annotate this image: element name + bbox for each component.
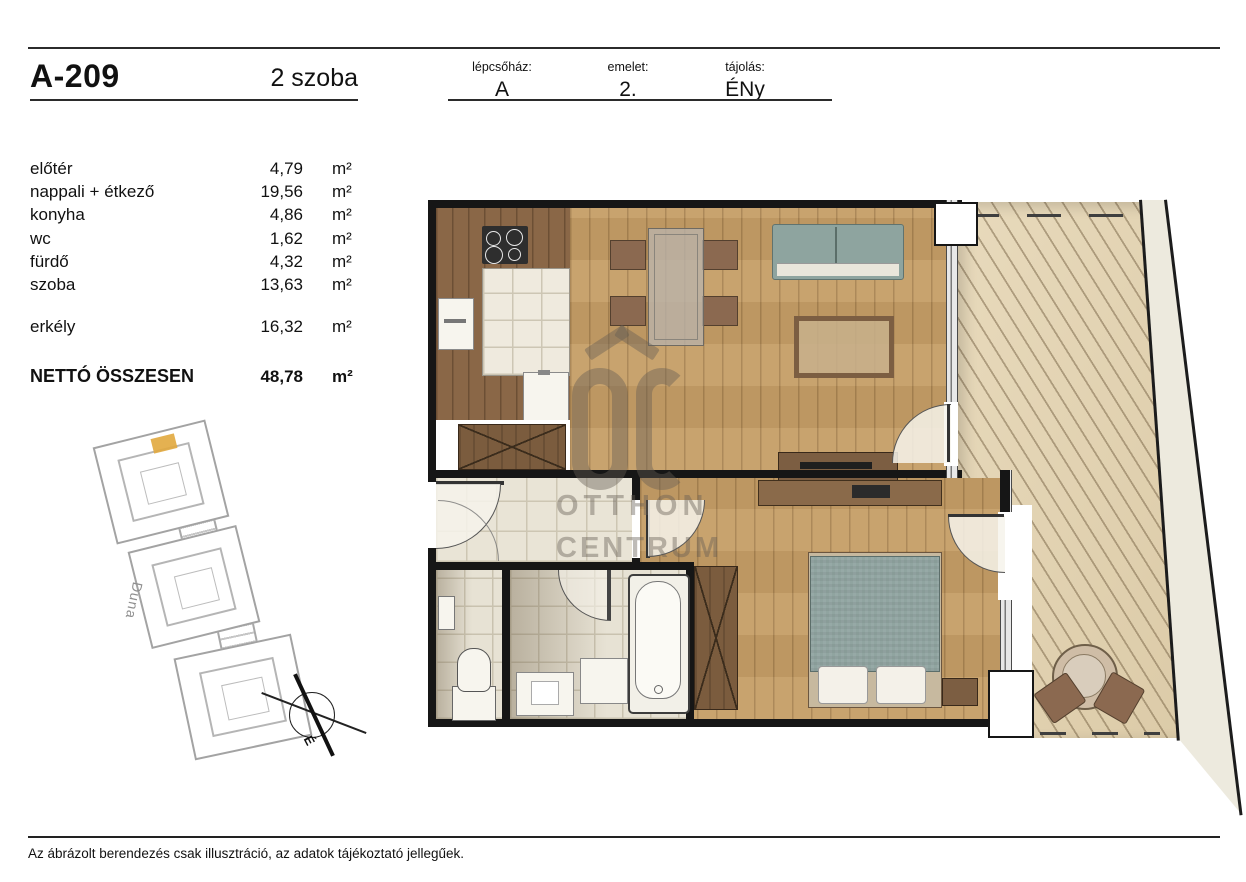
watermark-line1: OTTHON <box>556 490 708 523</box>
unit-type: 2 szoba <box>210 64 358 93</box>
room-area: 19,56 <box>198 182 303 202</box>
room-area: 13,63 <box>198 275 303 295</box>
bedside-bench <box>942 678 978 706</box>
watermark-letter-c <box>636 368 688 490</box>
room-area: 1,62 <box>198 229 303 249</box>
dining-table <box>648 228 704 346</box>
dining-chair <box>702 240 738 270</box>
dining-chair <box>610 240 646 270</box>
toilet <box>457 648 491 692</box>
bed-blanket <box>810 556 940 672</box>
bed-pillow <box>818 666 868 704</box>
terrace-railing-marks <box>965 214 1133 217</box>
kitchen-cabinet <box>458 424 566 470</box>
top-rule <box>28 47 1220 49</box>
bedroom-terrace-door-leaf <box>948 514 1004 517</box>
wardrobe <box>694 566 738 710</box>
sofa <box>772 224 904 280</box>
wall-living-divider <box>428 470 962 478</box>
room-name: konyha <box>30 205 85 225</box>
bathroom-door-leaf <box>607 570 611 620</box>
wall-notch-top <box>934 202 978 246</box>
kitchen-counter <box>482 268 570 376</box>
room-area: 4,32 <box>198 252 303 272</box>
room-unit: m² <box>332 229 352 249</box>
kitchen-faucet <box>538 370 550 375</box>
room-name: szoba <box>30 275 75 295</box>
room-unit: m² <box>332 182 352 202</box>
room-unit: m² <box>332 252 352 272</box>
cooktop-burner <box>508 248 521 261</box>
balcony-area: 16,32 <box>198 317 303 337</box>
vanity-basin <box>531 681 559 705</box>
balcony-name: erkély <box>30 317 75 337</box>
room-unit: m² <box>332 275 352 295</box>
room-area: 4,79 <box>198 159 303 179</box>
kitchen-sink <box>523 372 569 422</box>
floorplan-datasheet: A-209 2 szoba lépcsőház: A emelet: 2. tá… <box>0 0 1246 882</box>
bathtub-drain <box>654 685 663 694</box>
field-stairwell: lépcsőház: A <box>442 60 562 102</box>
footer-rule <box>28 836 1220 838</box>
footer-disclaimer: Az ábrázolt berendezés csak illusztráció… <box>28 846 464 861</box>
dining-chair <box>610 296 646 326</box>
dining-chair <box>702 296 738 326</box>
fridge <box>438 298 474 350</box>
balcony-unit: m² <box>332 317 352 337</box>
field-orientation: tájolás: ÉNy <box>685 60 805 102</box>
bathtub-basin <box>635 581 681 699</box>
bathroom-vanity <box>516 672 574 716</box>
sofa-seat-edge <box>777 263 899 276</box>
wall-left-upper <box>428 200 436 482</box>
site-building <box>173 634 312 761</box>
room-unit: m² <box>332 205 352 225</box>
terrace-edge-marks <box>1040 732 1160 735</box>
wall-bottom <box>428 719 1016 727</box>
washing-machine <box>580 658 628 704</box>
wc-sink <box>438 596 455 630</box>
dining-table-inner <box>654 234 698 340</box>
room-unit: m² <box>332 159 352 179</box>
cooktop-burner <box>485 246 503 264</box>
room-name: előtér <box>30 159 73 179</box>
cooktop-burner <box>506 229 523 246</box>
wall-notch-bottom <box>988 670 1034 738</box>
desk-laptop <box>852 485 890 498</box>
room-area: 4,86 <box>198 205 303 225</box>
cooktop-burner <box>486 231 501 246</box>
bed-pillow <box>876 666 926 704</box>
tv <box>800 462 872 469</box>
total-unit: m² <box>332 367 353 387</box>
wall-top <box>428 200 962 208</box>
room-name: fürdő <box>30 252 69 272</box>
watermark-letter-o <box>572 368 628 490</box>
watermark-line2: CENTRUM <box>556 532 722 565</box>
unit-underline <box>30 99 358 101</box>
room-name: wc <box>30 229 51 249</box>
field-floor: emelet: 2. <box>568 60 688 102</box>
living-terrace-door-leaf <box>947 404 950 462</box>
total-label: NETTÓ ÖSSZESEN <box>30 366 194 387</box>
fields-underline <box>448 99 832 101</box>
bathtub <box>628 574 690 714</box>
orientation-label: tájolás: <box>685 60 805 74</box>
desk <box>758 480 942 506</box>
wall-left-lower <box>428 548 436 727</box>
room-name: nappali + étkező <box>30 182 154 202</box>
wall-wc-bath <box>502 570 510 719</box>
coffee-table <box>794 316 894 378</box>
fridge-handle <box>444 319 466 323</box>
sofa-cushion-divider <box>835 227 837 263</box>
bedroom-terrace-wall-solid <box>1000 470 1010 514</box>
floor-label: emelet: <box>568 60 688 74</box>
unit-id: A-209 <box>30 58 120 95</box>
total-area: 48,78 <box>198 367 303 387</box>
stairwell-label: lépcsőház: <box>442 60 562 74</box>
